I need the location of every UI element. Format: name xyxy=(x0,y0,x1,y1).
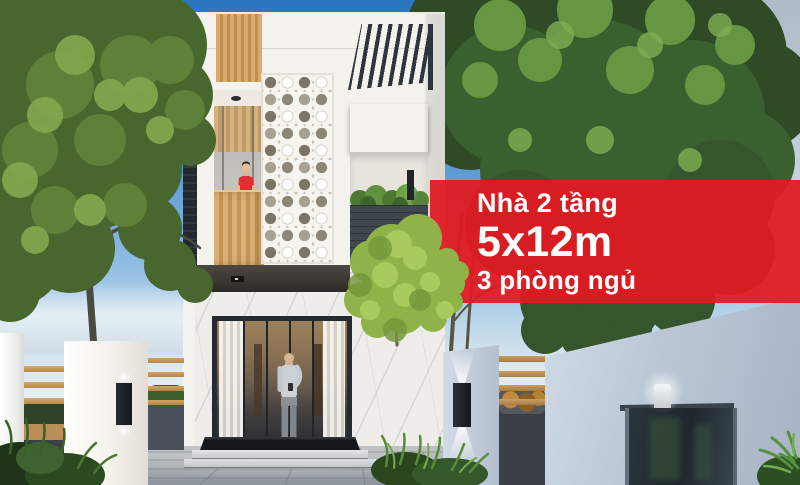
architectural-render-scene: Nhà 2 tầng 5x12m 3 phòng ngủ xyxy=(0,0,800,485)
tree-front-yard xyxy=(0,0,800,485)
